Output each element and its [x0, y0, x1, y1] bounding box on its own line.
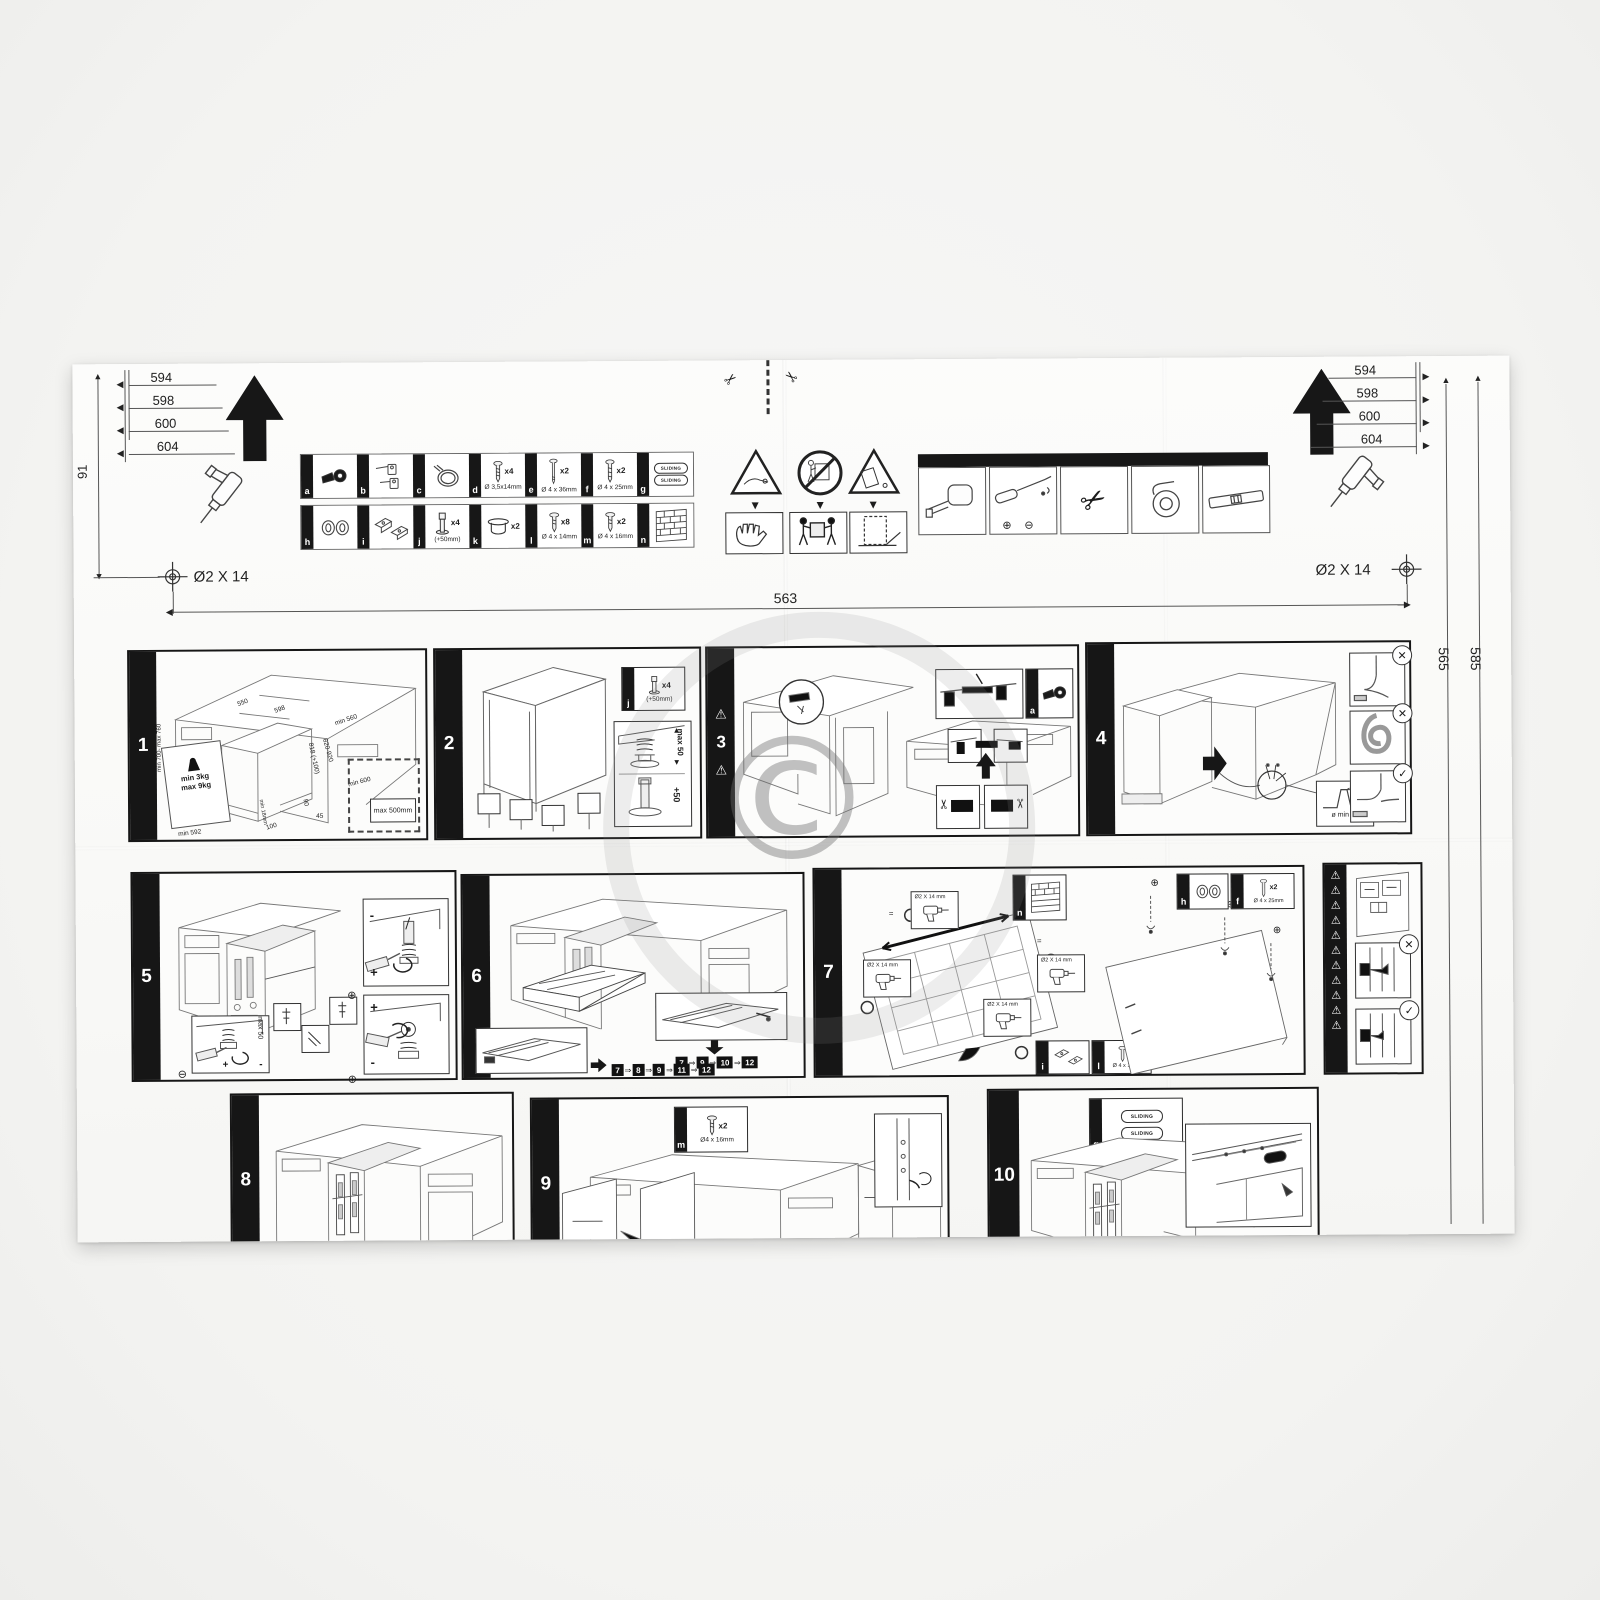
tape-strip-icon [320, 466, 350, 486]
step-number-strip: ⚠ 3 ⚠ [707, 648, 735, 836]
step-7-panel-drawing [1095, 887, 1302, 1074]
step-number: 3 [716, 732, 726, 752]
hose-clamp-icon [431, 463, 463, 489]
down-arrow-small [705, 1040, 723, 1054]
hose-wrong-kink-box: ✕ [1349, 652, 1405, 706]
rail-detail-left [475, 1027, 587, 1074]
arrow-left-icon: ◀ [117, 403, 124, 412]
grommets-icon [1194, 883, 1224, 899]
part-letter: f [1231, 874, 1243, 908]
adjust-point-box [273, 1003, 301, 1031]
part-qty: x4 [505, 467, 514, 476]
part-k: k x2 [469, 505, 525, 548]
plus-bit-icon: ⊕ [1002, 519, 1011, 532]
part-letter: k [469, 505, 481, 548]
seq-step: 12 [742, 1056, 758, 1068]
arrow-right-icon: ▶ [1423, 441, 1430, 450]
part-letter: e [525, 454, 537, 497]
part-letter: a [301, 455, 313, 498]
drill-template-icon [1029, 879, 1061, 915]
plus-50-label: +50 [672, 787, 682, 802]
part-qty: x4 [662, 680, 671, 689]
part-letter: j [622, 668, 634, 710]
cross-mark: ✕ [1392, 703, 1412, 723]
warning-icon: ⚠ [715, 706, 727, 722]
part-letter: a [1026, 670, 1038, 718]
part-size: Ø 4 x 25mm [597, 483, 632, 490]
step-9-drawing [560, 1134, 861, 1243]
tools-strip: ⊕ ⊖ ✂ [918, 452, 1269, 538]
step-6-panel: 6 [460, 872, 805, 1080]
adjust-point-box [301, 1025, 329, 1053]
drill-icon [175, 455, 251, 534]
wear-gloves-box [725, 512, 783, 554]
tape-strip-segment [976, 741, 998, 748]
arrow-right-icon: ▶ [1404, 600, 1411, 609]
dim-91: 91 [75, 465, 90, 480]
instruction-sheet: ◀ 594 ◀ 598 ◀ 600 ◀ 604 ▲ ▼ 91 [72, 356, 1514, 1243]
screw-icon [706, 1115, 716, 1135]
step-4-drawing [1119, 653, 1340, 826]
step-number: 7 [814, 870, 842, 1076]
tick-600: 600 [1359, 408, 1381, 423]
minus-label: - [259, 1059, 262, 1070]
foot-adjust-detail: max 50 ▲ ▼ +50 [614, 721, 693, 827]
part-size: (+50mm) [646, 696, 672, 703]
drill-callout: Ø2 X 14 mm [911, 891, 959, 929]
parts-row-1: a b c d x4 Ø 3,5x14mm [300, 452, 694, 499]
part-l: l x8 Ø 4 x 14mm [525, 504, 581, 547]
part-size: Ø 4 x 16mm [598, 532, 633, 539]
arrow-right-icon: ▶ [1423, 395, 1430, 404]
drill-callout: Ø2 X 14 mm [983, 999, 1031, 1037]
plus-label: + [370, 965, 378, 980]
seq-arrow-icon: ⇒ [645, 1065, 652, 1074]
step-number: 5 [132, 874, 160, 1080]
part-letter: h [301, 506, 313, 549]
minus-bit-icon: ⊖ [1024, 519, 1033, 532]
step-10-panel: 10 g SLIDING SLIDING [987, 1087, 1320, 1243]
warning-strip: ⚠ ⚠ ⚠ ⚠ ⚠ ⚠ ⚠ ⚠ ⚠ ⚠ ⚠ [1324, 865, 1347, 1073]
drill-icon [1317, 448, 1393, 527]
max-50-label: max 50 [256, 1016, 263, 1039]
cut-line [766, 360, 769, 414]
dim-90: 90 [302, 798, 310, 806]
tick-598: 598 [153, 393, 175, 408]
hole-spec-left: Ø2 X 14 [194, 568, 249, 585]
spacer-foot-icon [435, 511, 449, 535]
arrow-down-icon: ▼ [673, 758, 681, 767]
screw-icon [1260, 879, 1268, 897]
step-number: 4 [1087, 644, 1115, 834]
cut-tape-right-box: ✂ [984, 785, 1028, 829]
step-8-drawing [262, 1102, 507, 1243]
part-size: Ø 3,5x14mm [484, 483, 521, 490]
screwdriver-icon: ⊕ ⊖ [989, 466, 1057, 534]
arrow-left-icon: ◀ [117, 449, 124, 458]
tick-600: 600 [155, 416, 177, 431]
part-size: Ø 4 x 36mm [541, 486, 576, 493]
tape-measure-icon [918, 467, 986, 535]
plus-bit-icon: ⊕ [1150, 878, 1158, 889]
minus-bit-icon: ⊖ [178, 1068, 187, 1081]
check-mark: ✓ [1399, 1000, 1419, 1020]
scissors-tool-icon: ✂ [1060, 466, 1128, 534]
support-panel-box [849, 511, 907, 553]
step-3-panel: ⚠ 3 ⚠ [705, 644, 1080, 838]
part-d: d x4 Ø 3,5x14mm [469, 454, 525, 497]
parts-row-2: h i j x4 (+50mm) k [300, 503, 694, 550]
hinge-detail-box [874, 1113, 943, 1207]
tick-604: 604 [1361, 431, 1383, 446]
hose-wrong-coil-box: ✕ [1349, 710, 1405, 764]
step-1-panel: 1 min 3kg max 9kg min [127, 648, 428, 842]
step-3-drawing [737, 653, 918, 830]
part-letter: i [1036, 1041, 1048, 1073]
part-letter: d [469, 454, 481, 497]
seq-step: 7 [612, 1064, 624, 1076]
correct-screw-box: ✓ [1355, 1008, 1411, 1064]
part-g: g SLIDING SLIDING [637, 453, 693, 496]
tick-604: 604 [157, 439, 179, 454]
scissors-icon: ✂ [720, 368, 741, 390]
part-qty: x2 [617, 466, 626, 475]
seq-step: 10 [717, 1056, 733, 1068]
handle-warning-panel: ⚠ ⚠ ⚠ ⚠ ⚠ ⚠ ⚠ ⚠ ⚠ ⚠ ⚠ ✕ ✓ [1322, 862, 1423, 1075]
part-f: f x2 Ø 4 x 25mm [581, 453, 637, 496]
part-n: n [637, 504, 693, 547]
step-2-drawing [465, 653, 616, 834]
part-size: (+50mm) [434, 536, 460, 543]
step-4-panel: 4 ø min 80 ✕ [1085, 640, 1412, 836]
screw-icon [492, 460, 502, 482]
part-j-callout: j x4 (+50mm) [621, 667, 685, 711]
no-single-person-sign [795, 448, 845, 498]
part-n-callout: n [1012, 874, 1066, 920]
plus-label: + [370, 1000, 378, 1015]
step-number: 9 [532, 1099, 560, 1242]
drill-crosshair [1392, 554, 1422, 584]
part-a: a [301, 455, 357, 498]
two-person-carry-box [789, 512, 847, 554]
step-2-panel: 2 j x4 [433, 647, 702, 841]
arrow-down-icon: ▼ [814, 498, 826, 512]
cross-mark: ✕ [1399, 934, 1419, 954]
part-b: b [357, 454, 413, 497]
part-letter: n [1013, 876, 1025, 920]
arrow-up-icon: ▲ [1473, 374, 1482, 383]
cross-mark: ✕ [1392, 645, 1412, 665]
arrow-left-icon: ◀ [117, 426, 124, 435]
part-h-callout: h [1176, 873, 1228, 909]
tape-end-right-box [994, 729, 1028, 763]
step-7-panel: 7 = = Ø2 X 14 mm [812, 865, 1305, 1078]
tick-594: 594 [1354, 362, 1376, 377]
screw-icon [605, 512, 615, 532]
dim-45: 45 [316, 813, 323, 820]
screw-icon [604, 459, 614, 483]
dim-565: 565 [1436, 647, 1452, 670]
seq-arrow-icon: ⇒ [734, 1058, 741, 1067]
plus-bit-icon: ⊕ [347, 989, 356, 1002]
part-letter: f [581, 453, 593, 496]
warning-icon: ⚠ [715, 762, 727, 778]
part-letter: c [413, 454, 425, 497]
part-qty: x2 [617, 517, 626, 526]
sliding-plate: SLIDING [654, 463, 688, 474]
drill-callout: Ø2 X 14 mm [1037, 954, 1085, 992]
sliding-plate: SLIDING [654, 475, 688, 486]
plus-label: + [223, 1059, 229, 1070]
dim-panel-height: min 700- max 760 [157, 724, 163, 772]
hose-length: max 500mm [374, 807, 413, 814]
front-foot-detail: max 50 + - [191, 1015, 269, 1073]
part-letter: g [637, 453, 649, 496]
part-letter: j [413, 505, 425, 548]
angle-bracket-icon [373, 514, 409, 540]
sharp-edge-warning-triangle [729, 448, 783, 496]
tipping-warning-triangle [847, 447, 901, 495]
part-i: i [357, 505, 413, 548]
safety-warnings: ▼ ▼ ▼ [723, 447, 914, 558]
part-letter: n [637, 504, 649, 547]
slide-rail-detail [1185, 1123, 1312, 1228]
corner-dims-right: ▶ 594 ▶ 598 ▶ 600 ▶ 604 Ø2 X 14 [1262, 356, 1511, 618]
dim-panel-width: min 592 [178, 828, 202, 838]
photo-canvas: { "icons":{ "warning":"⚠","scissors":"✂"… [0, 0, 1600, 1600]
angle-bracket-icon [1052, 1046, 1086, 1068]
part-h: h [301, 506, 357, 549]
part-a-callout: a [1025, 668, 1073, 718]
part-c: c [413, 454, 469, 497]
part-e: e x2 Ø 4 x 36mm [525, 453, 581, 496]
check-mark: ✓ [1393, 763, 1413, 783]
step-number: 2 [435, 650, 463, 838]
cut-tape-left-box: ✂ [936, 785, 980, 829]
spacer-foot-icon [648, 675, 660, 695]
part-j: j x4 (+50mm) [413, 505, 469, 548]
scissors-icon: ✂ [780, 366, 801, 388]
step-number: 8 [232, 1095, 260, 1242]
rail-detail-right [655, 992, 787, 1041]
tape-roll-icon [1131, 466, 1199, 534]
seq-arrow-icon: ⇒ [691, 1065, 698, 1074]
part-letter: i [357, 506, 369, 549]
plus-bit-icon: ⊕ [1273, 925, 1281, 936]
seq-arrow-icon: ⇒ [625, 1065, 632, 1074]
tick-594: 594 [150, 370, 172, 385]
part-letter: h [1177, 875, 1189, 909]
door-panel-spec: min 3kg max 9kg [161, 740, 231, 829]
part-qty: x2 [511, 522, 520, 531]
dim-585: 585 [1468, 647, 1484, 670]
part-letter: l [525, 505, 537, 548]
part-qty: x8 [561, 517, 570, 526]
cup-spacer-icon [487, 517, 509, 535]
part-size: Ø 4 x 14mm [542, 533, 577, 540]
part-m: m x2 Ø 4 x 16mm [581, 504, 637, 547]
equal-left: = [889, 909, 894, 918]
tape-apply-detail [935, 669, 1023, 720]
step-8-panel: 8 [230, 1092, 515, 1243]
tick-598: 598 [1356, 385, 1378, 400]
part-letter: b [357, 455, 369, 498]
arrow-right-icon: ▶ [1423, 418, 1430, 427]
drill-template-icon [654, 507, 688, 543]
screw-icon [549, 512, 559, 532]
drill-crosshair [158, 562, 188, 592]
minus-label: - [371, 1055, 375, 1070]
arrow-down-icon: ▼ [867, 497, 879, 511]
seq-step: 9 [653, 1064, 665, 1076]
part-f-callout: f x2 Ø 4 x 25mm [1230, 873, 1294, 909]
equal-right: = [1037, 936, 1042, 945]
door-handles-drawing [1350, 868, 1416, 938]
arrow-up-icon: ▲ [1441, 376, 1450, 385]
part-letter: m [581, 504, 593, 547]
step-number: 10 [989, 1091, 1020, 1243]
step-5-panel: 5 max 50 + - ⊖ [130, 870, 457, 1082]
step-9-panel: 9 m x2 Ø4 x 16mm [530, 1095, 950, 1242]
minus-label: - [370, 908, 374, 923]
plus-bit-icon: ⊕ [348, 1073, 357, 1086]
seq-step: 8 [632, 1064, 644, 1076]
part-qty: x4 [451, 518, 460, 527]
seq-step: 11 [674, 1064, 690, 1076]
scissors-icon: ✂ [1012, 798, 1028, 809]
part-qty: x2 [560, 466, 569, 475]
hose-length-box: max 500mm [370, 798, 416, 822]
dim-563: 563 [774, 590, 797, 606]
arrow-right-icon: ▶ [1422, 372, 1429, 381]
arrow-left-icon: ◀ [166, 608, 173, 617]
rear-foot-detail-top: - + [363, 898, 450, 987]
seq-arrow-icon: ⇒ [666, 1065, 673, 1074]
drill-callout: Ø2 X 14 mm [863, 959, 911, 997]
grommets-icon [319, 518, 351, 536]
arrow-up-icon: ▲ [673, 726, 681, 735]
tape-strip-icon [1041, 683, 1069, 703]
part-i-callout: i [1035, 1040, 1089, 1074]
arrow-up-icon: ▲ [93, 372, 102, 381]
wrong-screw-box: ✕ [1355, 942, 1411, 998]
step-number: 1 [129, 652, 157, 840]
long-screw-icon [549, 457, 558, 485]
hose-correct-box: ✓ [1350, 770, 1406, 822]
arrow-left-icon: ◀ [116, 380, 123, 389]
arrow-down-icon: ▼ [749, 498, 761, 512]
hole-spec-right: Ø2 X 14 [1316, 561, 1371, 578]
right-arrow-small [591, 1058, 607, 1072]
seq-step: 12 [698, 1063, 714, 1075]
sequence-b: 7⇒ 8⇒ 9⇒ 11⇒ 12 [612, 1063, 715, 1076]
rear-foot-detail-bottom: + - [363, 994, 449, 1075]
spirit-level-icon [1202, 465, 1270, 533]
bracket-screw-icon [374, 462, 408, 490]
